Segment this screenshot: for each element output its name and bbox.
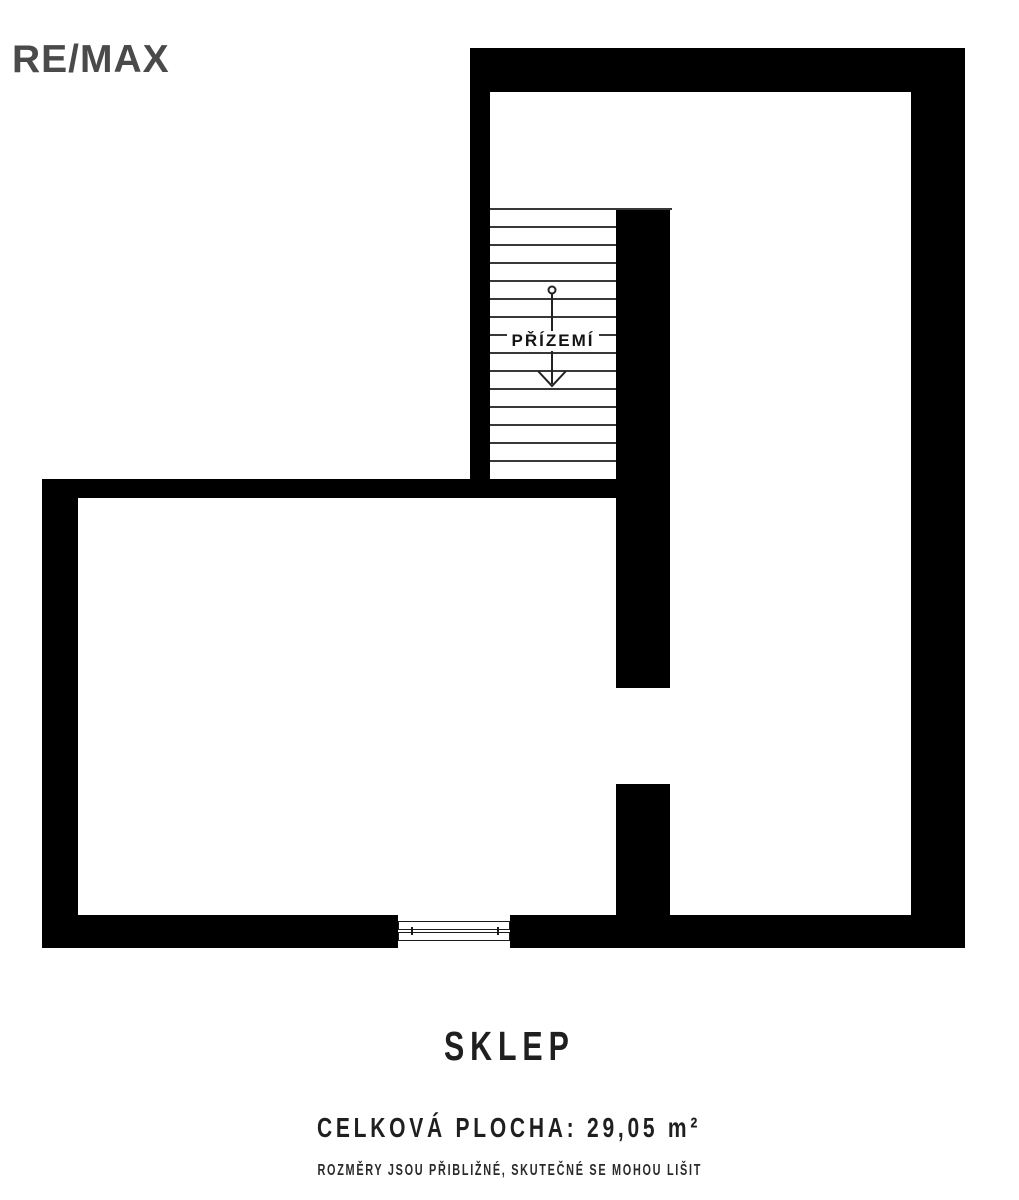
floor-plan: PŘÍZEMÍ [0,0,1019,1019]
total-area-label: CELKOVÁ PLOCHA: 29,05 m² [0,1114,1019,1142]
wall-middle-stub [616,784,670,915]
wall-lower-room-left [42,479,78,948]
stair-destination-label: PŘÍZEMÍ [507,331,600,351]
dimensions-disclaimer: ROZMĚRY JSOU PŘIBLIŽNÉ, SKUTEČNÉ SE MOHO… [0,1163,1019,1179]
wall-top [470,48,965,92]
plan-title-text: SKLEP [444,1026,575,1067]
wall-lower-room-top [42,479,670,498]
floor-plan-page: RE/MAX PŘÍZEMÍ SKLEP [0,0,1019,1200]
window-frame-line [398,932,510,941]
window-frame-line [398,921,510,930]
dimensions-disclaimer-text: ROZMĚRY JSOU PŘIBLIŽNÉ, SKUTEČNÉ SE MOHO… [317,1163,702,1179]
window-tick [411,927,413,935]
wall-right [911,48,965,948]
wall-bottom-right [510,915,965,948]
window-tick [497,927,499,935]
wall-stairwell-left [470,48,490,479]
wall-bottom-left [42,915,398,948]
plan-title: SKLEP [0,1026,1019,1067]
stair-label-row: PŘÍZEMÍ [490,331,616,351]
total-area-text: CELKOVÁ PLOCHA: 29,05 m² [317,1114,701,1142]
window-symbol [398,920,510,942]
wall-middle-upper [616,210,670,688]
